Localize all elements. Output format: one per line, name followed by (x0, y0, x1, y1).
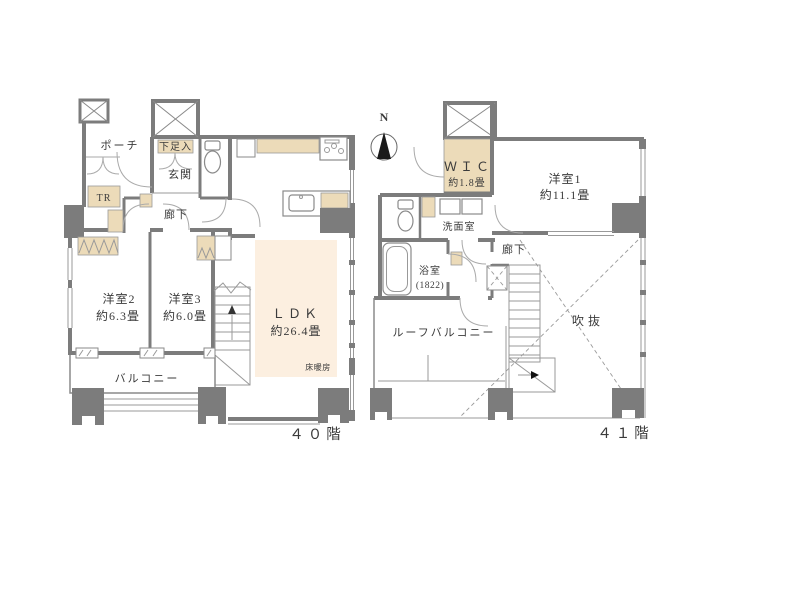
label-bathroom: 浴室 (419, 264, 441, 277)
stair-up-arrow-icon (228, 305, 236, 314)
mid-right-pillar (612, 203, 644, 233)
label-corridor-41f: 廊下 (502, 242, 526, 256)
label-floor-41: ４１階 (597, 425, 653, 442)
corridor-storage-left (108, 210, 123, 232)
label-bedroom3: 洋室3 (168, 291, 201, 306)
label-bedroom3-size: 約6.0畳 (163, 308, 207, 323)
label-trunk-room: TR (97, 193, 112, 204)
bedroom3-closet (197, 236, 231, 260)
kitchen-pillar (320, 208, 352, 233)
label-ldk-size: 約26.4畳 (270, 323, 321, 338)
staircase-41f (509, 265, 555, 392)
label-bedroom1: 洋室1 (548, 171, 581, 186)
toilet-41f (398, 200, 413, 231)
kitchen-counter (257, 139, 319, 153)
right-window-wall (351, 137, 354, 420)
corner-pillar (64, 205, 84, 238)
small-shaft-box (80, 100, 108, 122)
label-bedroom2-size: 約6.3畳 (96, 308, 140, 323)
label-floor-heating: 床暖房 (305, 362, 331, 372)
label-corridor-40f: 廊下 (164, 207, 188, 221)
elevator-shaft (153, 101, 198, 137)
staircase-40f (214, 282, 251, 385)
pipe-shaft-box (487, 266, 507, 290)
bedroom2-closet (78, 237, 118, 255)
fridge (237, 139, 255, 157)
label-porch: ポーチ (101, 139, 140, 152)
label-void: 吹抜 (572, 314, 604, 328)
floor-plan-page: ポーチ 下足入 玄関 TR 廊下 洋室2 約6.3畳 洋室3 約6.0畳 ＬＤＫ… (0, 0, 801, 600)
label-floor-40: ４０階 (289, 426, 345, 443)
label-bedroom1-size: 約11.1畳 (540, 187, 591, 202)
north-compass-icon: N (371, 110, 397, 160)
label-shoe-cabinet: 下足入 (159, 141, 192, 153)
label-entrance: 玄関 (168, 167, 192, 181)
washstand (422, 197, 482, 217)
right-window-wall-41f (641, 139, 645, 418)
label-washroom: 洗面室 (443, 220, 476, 233)
balcony-railing (104, 399, 199, 411)
label-ldk: ＬＤＫ (272, 306, 320, 321)
label-bedroom2: 洋室2 (102, 291, 135, 306)
floorplan-40f: ポーチ 下足入 玄関 TR 廊下 洋室2 約6.3畳 洋室3 約6.0畳 ＬＤＫ… (64, 100, 355, 443)
label-balcony: バルコニー (115, 372, 180, 385)
svg-text:N: N (380, 110, 389, 124)
elevator-shaft-41f (445, 103, 495, 138)
label-bathroom-size: (1822) (416, 280, 444, 291)
floor-plan-drawing: ポーチ 下足入 玄関 TR 廊下 洋室2 約6.3畳 洋室3 約6.0畳 ＬＤＫ… (0, 0, 801, 600)
label-wic-size: 約1.8畳 (448, 176, 486, 189)
floorplan-41f: N (370, 103, 653, 442)
stove (320, 137, 347, 160)
label-wic: ＷＩＣ (444, 159, 492, 174)
toilet-40f (205, 141, 221, 173)
kitchen (237, 137, 352, 233)
label-roof-balcony: ルーフバルコニー (392, 326, 495, 339)
